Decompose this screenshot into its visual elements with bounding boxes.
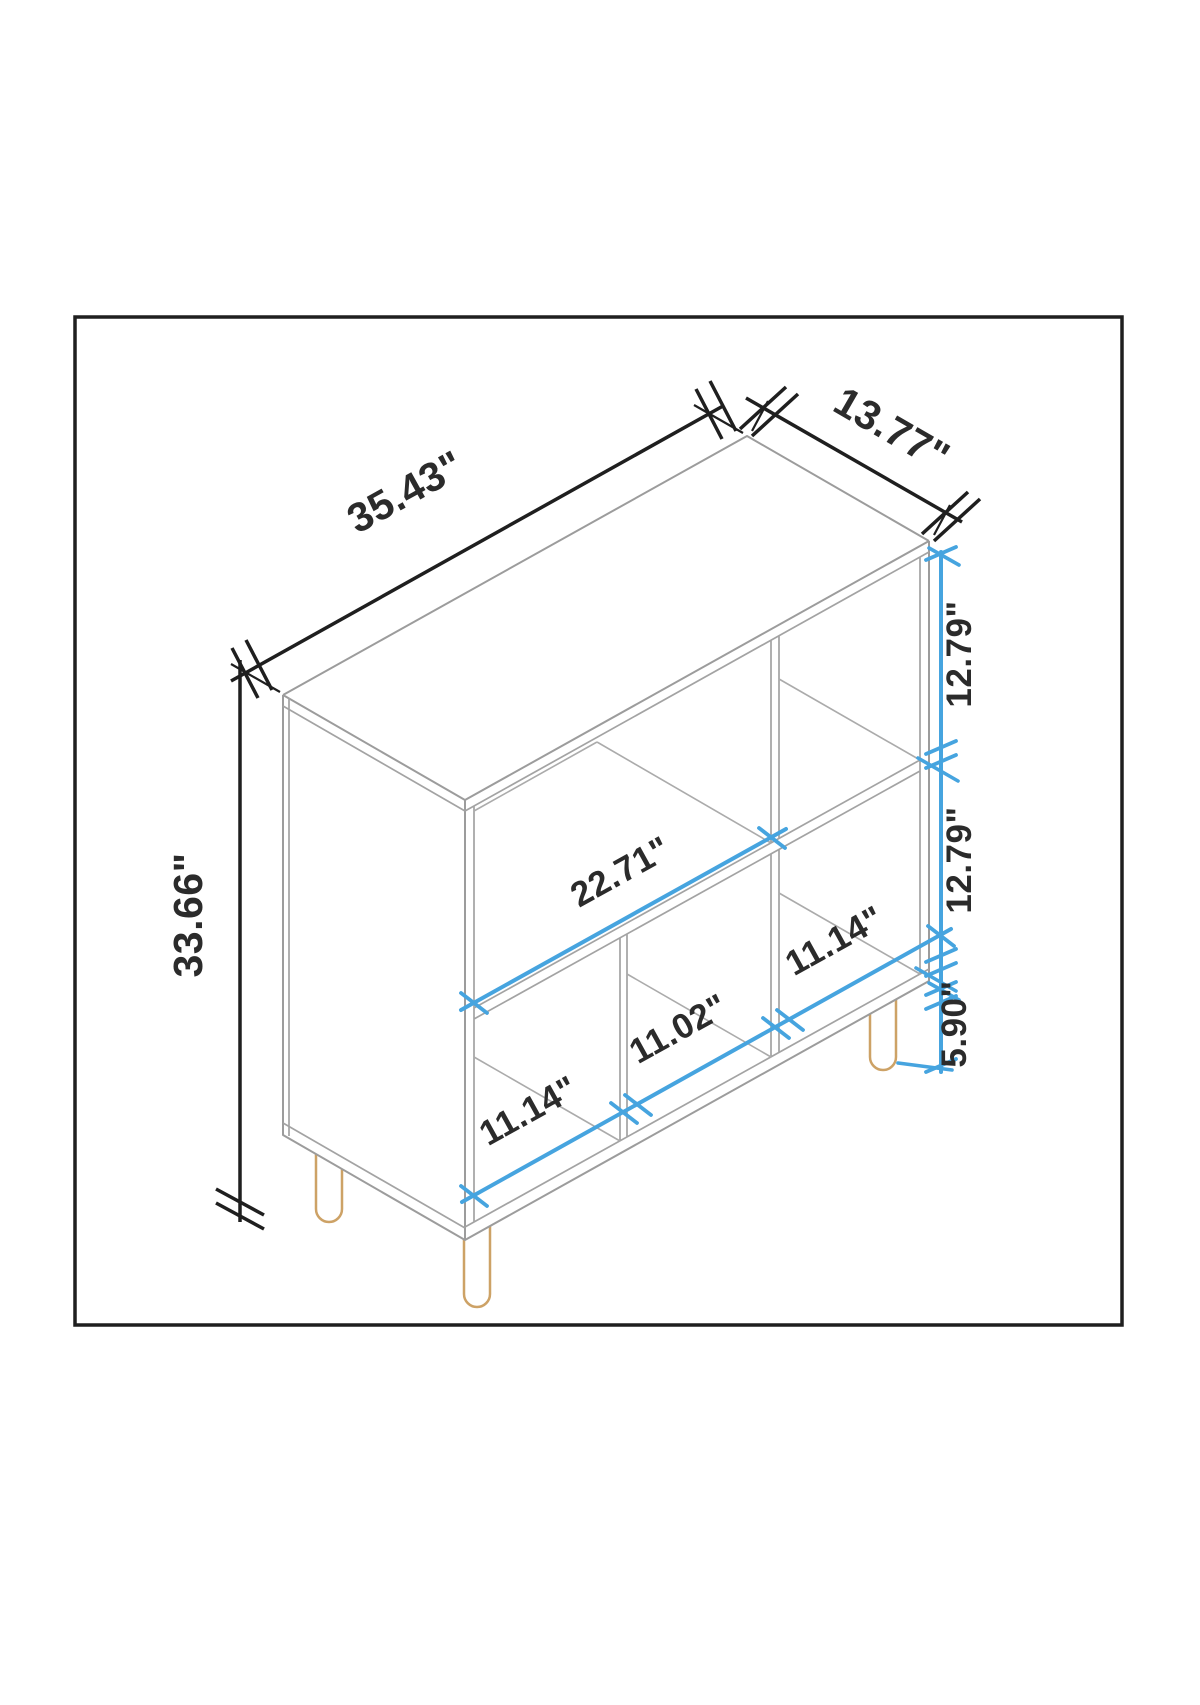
dim-label-bottom-cubby-height: 12.79" bbox=[940, 806, 979, 913]
diagram-page: 35.43" 13.77" 33.66" 12.79" 12.79" 5.90"… bbox=[0, 0, 1200, 1705]
dim-label-height: 33.66" bbox=[165, 852, 211, 977]
dimension-diagram: 35.43" 13.77" 33.66" 12.79" 12.79" 5.90"… bbox=[0, 0, 1200, 1705]
dim-label-top-cubby-height: 12.79" bbox=[940, 600, 979, 707]
dim-label-leg-height: 5.90" bbox=[935, 980, 974, 1067]
